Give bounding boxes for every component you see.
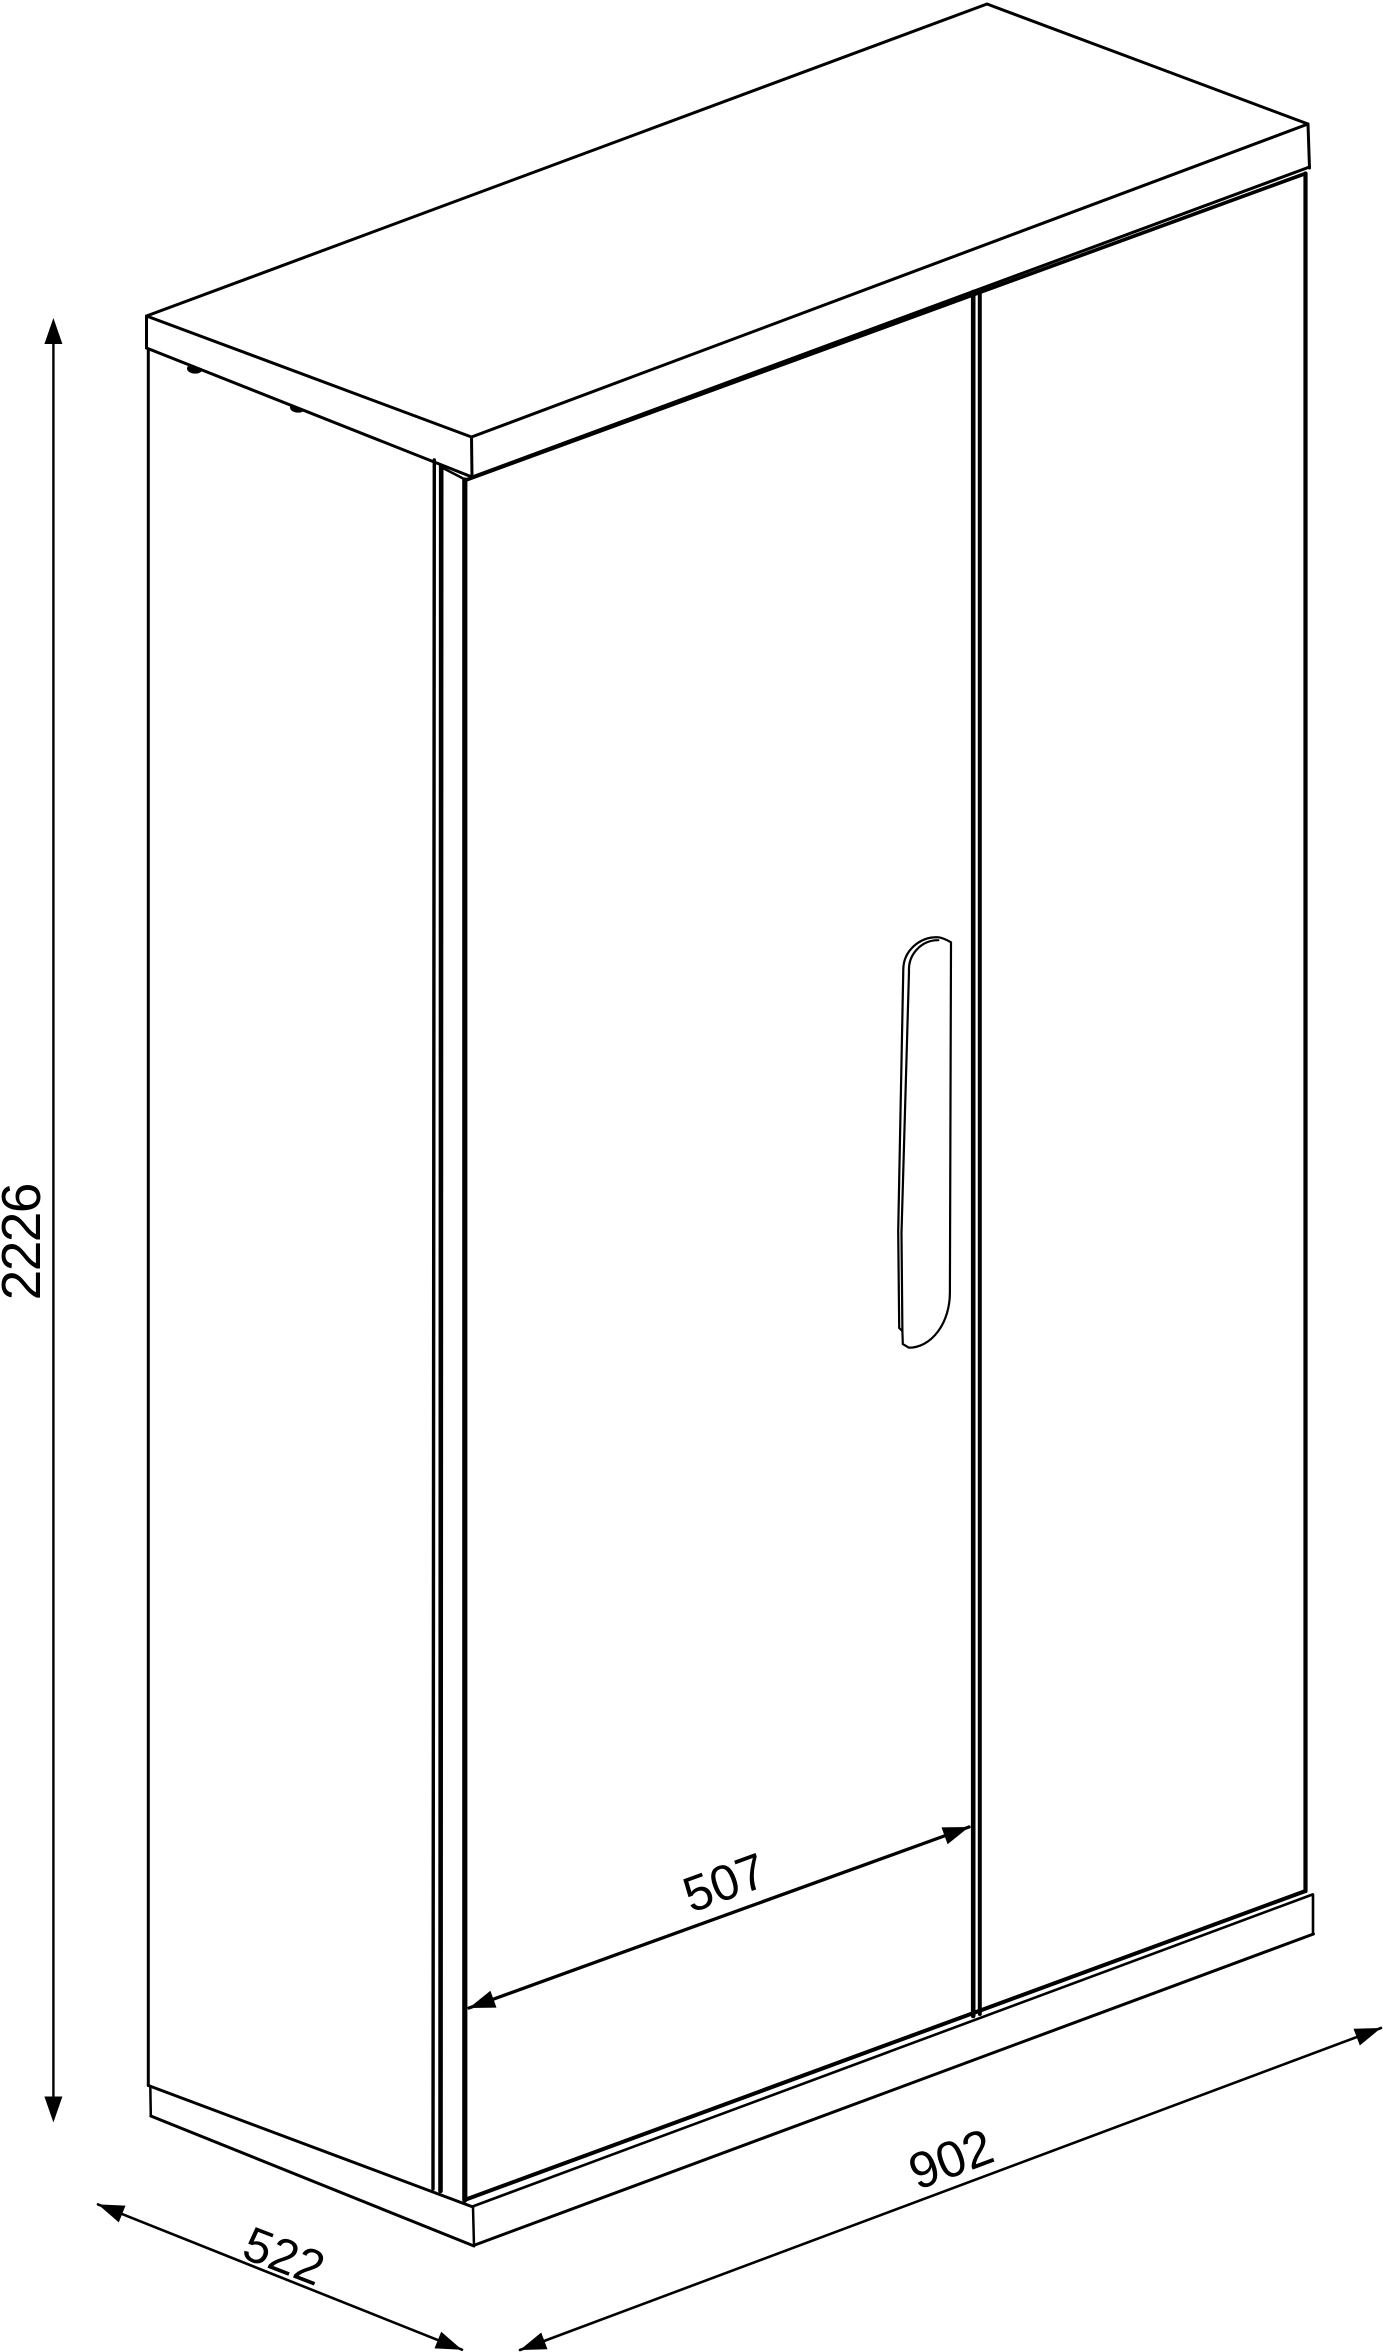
svg-text:2226: 2226 <box>0 1184 52 1300</box>
